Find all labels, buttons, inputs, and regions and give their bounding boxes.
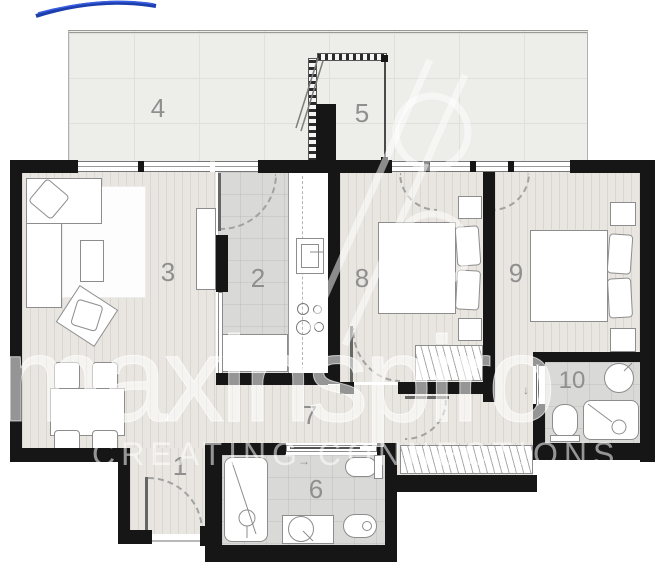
window-mullion xyxy=(470,161,476,172)
bed-pillow xyxy=(607,277,633,318)
wall-bathroom-6-right xyxy=(385,443,397,562)
wardrobe xyxy=(415,345,483,381)
burner xyxy=(296,320,311,335)
railing-post-top xyxy=(381,55,388,62)
wall-bedroom8-bottom xyxy=(398,382,495,394)
cooktop xyxy=(294,300,328,342)
wall-hallway-bottom xyxy=(397,475,537,492)
wall-bedroom8-bottom xyxy=(340,382,354,394)
coffee-table xyxy=(80,240,104,282)
wall-right xyxy=(640,160,655,462)
room-label-6: 6 xyxy=(309,476,323,502)
bedroom-9-vestibule-floor xyxy=(495,352,533,443)
terrace-hatched-strip-horizontal xyxy=(317,53,387,61)
dining-chair xyxy=(92,362,118,390)
terrace-railing-line xyxy=(384,58,386,162)
wall-stub xyxy=(483,382,495,402)
wall-bathroom-6-bottom xyxy=(205,545,397,562)
toilet-tank xyxy=(550,435,580,442)
bed xyxy=(378,222,456,314)
wall-bathroom-6-left xyxy=(205,443,222,545)
room-label-2: 2 xyxy=(251,265,265,291)
wall-dining-bottom xyxy=(10,448,130,462)
slide-direction-arrow-icon: → xyxy=(298,455,310,467)
room-label-5: 5 xyxy=(355,100,369,126)
room-label-1: 1 xyxy=(173,453,187,479)
sliding-glass-door xyxy=(392,161,570,172)
wall-entry-bottom xyxy=(124,530,152,544)
terrace-pillar xyxy=(316,104,336,162)
sliding-door-panel xyxy=(290,447,360,449)
brand-logo-swoosh-icon xyxy=(0,0,200,26)
wall-bathroom-6-top xyxy=(377,443,397,455)
bed xyxy=(530,230,608,322)
burner xyxy=(314,322,324,332)
kitchen-sink xyxy=(296,238,324,274)
bathtub xyxy=(583,400,639,440)
wall-segment xyxy=(258,160,392,173)
nightstand xyxy=(458,318,482,341)
room-label-9: 9 xyxy=(509,260,523,286)
bed-pillow xyxy=(607,233,634,275)
wall-kitchen-bottom xyxy=(216,373,328,385)
dining-table xyxy=(50,388,125,436)
room-label-8: 8 xyxy=(355,265,369,291)
wall-bathroom-6-top xyxy=(216,443,286,455)
window-mullion xyxy=(138,161,144,172)
toilet xyxy=(345,457,377,477)
bathtub-shower xyxy=(224,457,268,542)
wall-kitchen-bedroom8 xyxy=(328,172,340,384)
tv-sideboard xyxy=(196,208,216,290)
wall-bathroom-10-bottom xyxy=(533,443,655,460)
toilet-tank xyxy=(374,455,383,479)
wall-bedroom8-bedroom9 xyxy=(483,172,495,392)
floor-plan-canvas: → ↓ 1 2 3 4 5 6 7 8 9 10 m xyxy=(0,0,665,572)
kitchen-sink-basin xyxy=(301,244,319,268)
entry-door-threshold xyxy=(150,540,206,542)
nightstand xyxy=(458,196,482,219)
armchair-pillow xyxy=(70,298,104,332)
bidet-tap xyxy=(362,521,372,531)
window-mullion xyxy=(508,161,514,172)
bathroom-10-door-leaf xyxy=(536,364,539,406)
room-label-4: 4 xyxy=(151,95,165,121)
nightstand xyxy=(610,202,636,226)
wall-bathroom-10-top xyxy=(533,352,640,362)
glazed-partition xyxy=(218,292,223,374)
hallway-wardrobe xyxy=(400,445,533,474)
burner xyxy=(313,305,322,314)
room-label-3: 3 xyxy=(161,259,175,285)
window-mullion xyxy=(424,161,430,172)
vanity-sink xyxy=(288,516,314,542)
wall-bathroom-10-left xyxy=(533,352,545,366)
bed-pillow xyxy=(455,225,482,267)
bedroom-9-door-leaf xyxy=(405,396,449,399)
nightstand xyxy=(610,328,636,352)
window xyxy=(78,161,210,172)
window xyxy=(215,161,258,172)
kitchen-counter-return xyxy=(222,334,288,372)
burner xyxy=(297,303,309,315)
wall-living-kitchen xyxy=(216,235,228,292)
slide-direction-arrow-icon: ↓ xyxy=(523,384,529,396)
room-label-10: 10 xyxy=(559,369,586,393)
room-label-7: 7 xyxy=(303,402,317,428)
toilet xyxy=(552,404,578,438)
bed-pillow xyxy=(455,269,481,310)
wall-left xyxy=(10,160,22,462)
dining-chair xyxy=(54,362,80,390)
bidet xyxy=(343,514,377,538)
washbasin xyxy=(604,363,634,393)
